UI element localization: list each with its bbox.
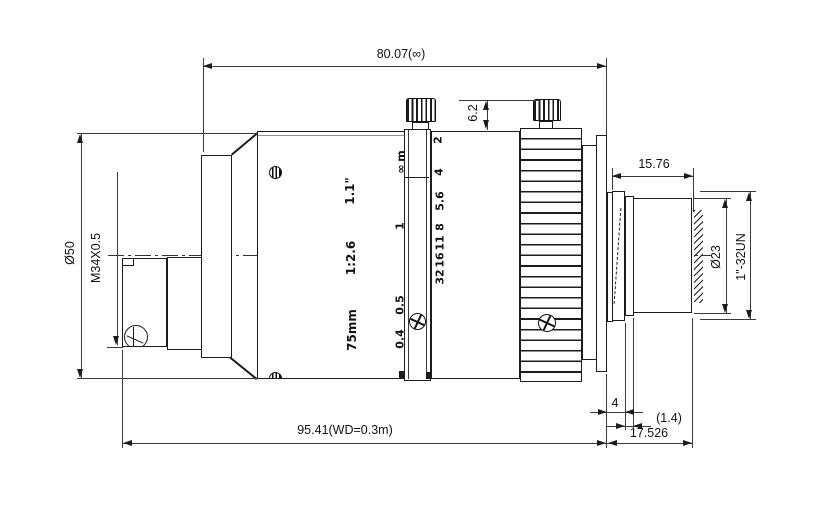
ext-line (203, 58, 204, 152)
focus-thumbscrew-head (533, 99, 561, 121)
focus-thumbscrew-neck (539, 121, 553, 129)
arrow-left-icon (625, 409, 634, 415)
focus-scale-04: 0.4 (395, 329, 406, 349)
aperture-scale-56: 5.6 (435, 191, 446, 211)
arrow-right-icon (683, 440, 692, 446)
ext-line (606, 58, 607, 135)
aperture-thumbscrew-head (406, 98, 436, 122)
focus-scale-inf: ∞ (396, 164, 407, 173)
dim-line (607, 443, 692, 444)
arrow-right-icon (597, 63, 606, 69)
dim-rear-length: 15.76 (638, 158, 669, 171)
dim-line (204, 66, 606, 67)
front-filter-tube (122, 258, 167, 347)
arrow-left-icon (633, 423, 642, 429)
ext-line (700, 319, 756, 320)
arrow-right-icon (684, 173, 693, 179)
ext-line (107, 347, 123, 348)
dim-rear-lip: (1.4) (656, 412, 682, 425)
aperture-ring (404, 129, 431, 381)
arrow-down-icon (483, 120, 489, 129)
arrow-down-icon (746, 310, 752, 319)
main-barrel (257, 131, 407, 379)
arrow-down-icon (722, 304, 728, 313)
image-plane-hatch (694, 210, 703, 303)
aperture-scale-16: 16 (435, 252, 446, 267)
dim-line (726, 198, 727, 314)
arrow-left-icon (123, 440, 132, 446)
ext-line (77, 133, 257, 134)
index-tick-left (399, 371, 404, 379)
arrow-up-icon (483, 101, 489, 110)
arrow-left-icon (203, 63, 212, 69)
ext-line (612, 168, 613, 190)
side-set-screw (269, 166, 282, 179)
front-element-facet (127, 335, 144, 343)
dim-rear-diameter: Ø23 (710, 245, 723, 269)
arrow-down-icon (113, 336, 119, 345)
ext-line (459, 100, 540, 101)
ext-line (77, 378, 257, 379)
thread-notch-line-h (123, 265, 134, 266)
front-element-chord (133, 327, 134, 346)
dim-line (123, 443, 606, 444)
front-cone-top-edge (231, 131, 260, 155)
aperture-scale-2: 2 (433, 136, 444, 144)
arrow-right-icon (597, 440, 606, 446)
ring-inner-edge-right (426, 130, 427, 379)
aperture-index-line (405, 177, 429, 178)
aperture-scale-4: 4 (434, 168, 445, 176)
mount-flange (596, 135, 607, 372)
dim-body-diameter: Ø50 (64, 241, 77, 265)
arrow-up-icon (746, 192, 752, 201)
front-cone-bottom-edge (230, 357, 257, 380)
focus-scale-1: 1 (395, 222, 406, 230)
dim-line (81, 134, 82, 379)
arrow-up-icon (77, 134, 83, 143)
dim-mount-thread: 1"-32UN (735, 233, 748, 281)
arrow-right-icon (616, 423, 625, 429)
dim-rear-step: 4 (612, 397, 619, 410)
dim-filter-thread: M34X0.5 (90, 233, 103, 283)
arrow-down-icon (77, 369, 83, 378)
ring-inner-edge-left (408, 130, 409, 379)
arrow-right-icon (598, 409, 607, 415)
marking-aperture-ratio: 1:2.6 (345, 241, 357, 275)
ext-line (122, 350, 123, 448)
front-ring (201, 155, 232, 358)
lens-technical-drawing: 80.07(∞) 6.2 Ø50 M34X0.5 15.76 Ø23 1"-32… (0, 0, 826, 509)
focus-scale-m: m (396, 150, 407, 161)
ext-line (692, 318, 693, 448)
dim-line (117, 172, 118, 345)
dim-line (750, 191, 751, 319)
rear-element-cap (612, 191, 625, 321)
aperture-thumbscrew-neck (412, 122, 429, 130)
marking-focal-length: 75mm (346, 309, 358, 351)
aperture-scale-32: 32 (435, 269, 446, 284)
arrow-left-icon (608, 440, 617, 446)
mount-thread-tube (633, 198, 692, 313)
arrow-left-icon (612, 173, 621, 179)
dim-overall-length: 95.41(WD=0.3m) (297, 424, 393, 437)
dim-line (612, 176, 693, 177)
marking-image-format: 1.1" (344, 177, 356, 205)
aperture-scale-8: 8 (435, 223, 446, 231)
arrow-up-icon (722, 199, 728, 208)
front-step-tube (167, 257, 203, 350)
focus-scale-05: 0.5 (395, 295, 406, 315)
focus-ring-knurled (520, 128, 582, 382)
rear-element-surface (614, 208, 622, 304)
dim-line (607, 426, 651, 427)
dim-length-to-image-plane: 80.07(∞) (377, 48, 426, 61)
front-element-detail (124, 325, 148, 347)
bottom-set-screw (269, 372, 282, 379)
dim-screw-protrusion: 6.2 (467, 104, 480, 121)
aperture-scale-11: 11 (435, 235, 446, 250)
ext-line (693, 168, 694, 212)
